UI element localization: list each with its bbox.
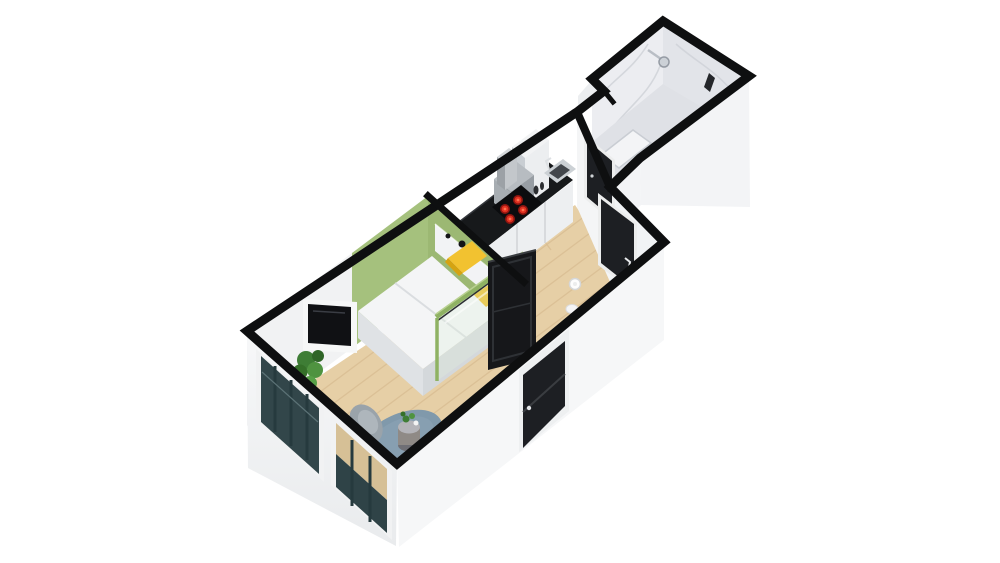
bottle — [534, 186, 539, 195]
floor-plan-render — [0, 0, 1000, 563]
table-plant — [401, 412, 406, 417]
floor-plan-stage — [0, 0, 1000, 563]
burner-core — [509, 218, 512, 221]
burner-core — [522, 209, 525, 212]
table-cup — [414, 421, 419, 426]
bottle — [540, 182, 544, 190]
bathroom-door-handle — [590, 174, 593, 177]
tv-screen — [308, 304, 351, 346]
plant-leaf — [312, 350, 324, 362]
shower-head — [659, 57, 669, 67]
ceiling-lamp-core — [573, 282, 577, 286]
burner-core — [517, 199, 520, 202]
headboard-knob — [446, 234, 451, 239]
balcony-door-handle — [527, 406, 531, 410]
burner-core — [504, 208, 507, 211]
plant-leaf — [307, 362, 323, 378]
table-plant — [409, 413, 415, 419]
table-plant — [403, 416, 410, 423]
